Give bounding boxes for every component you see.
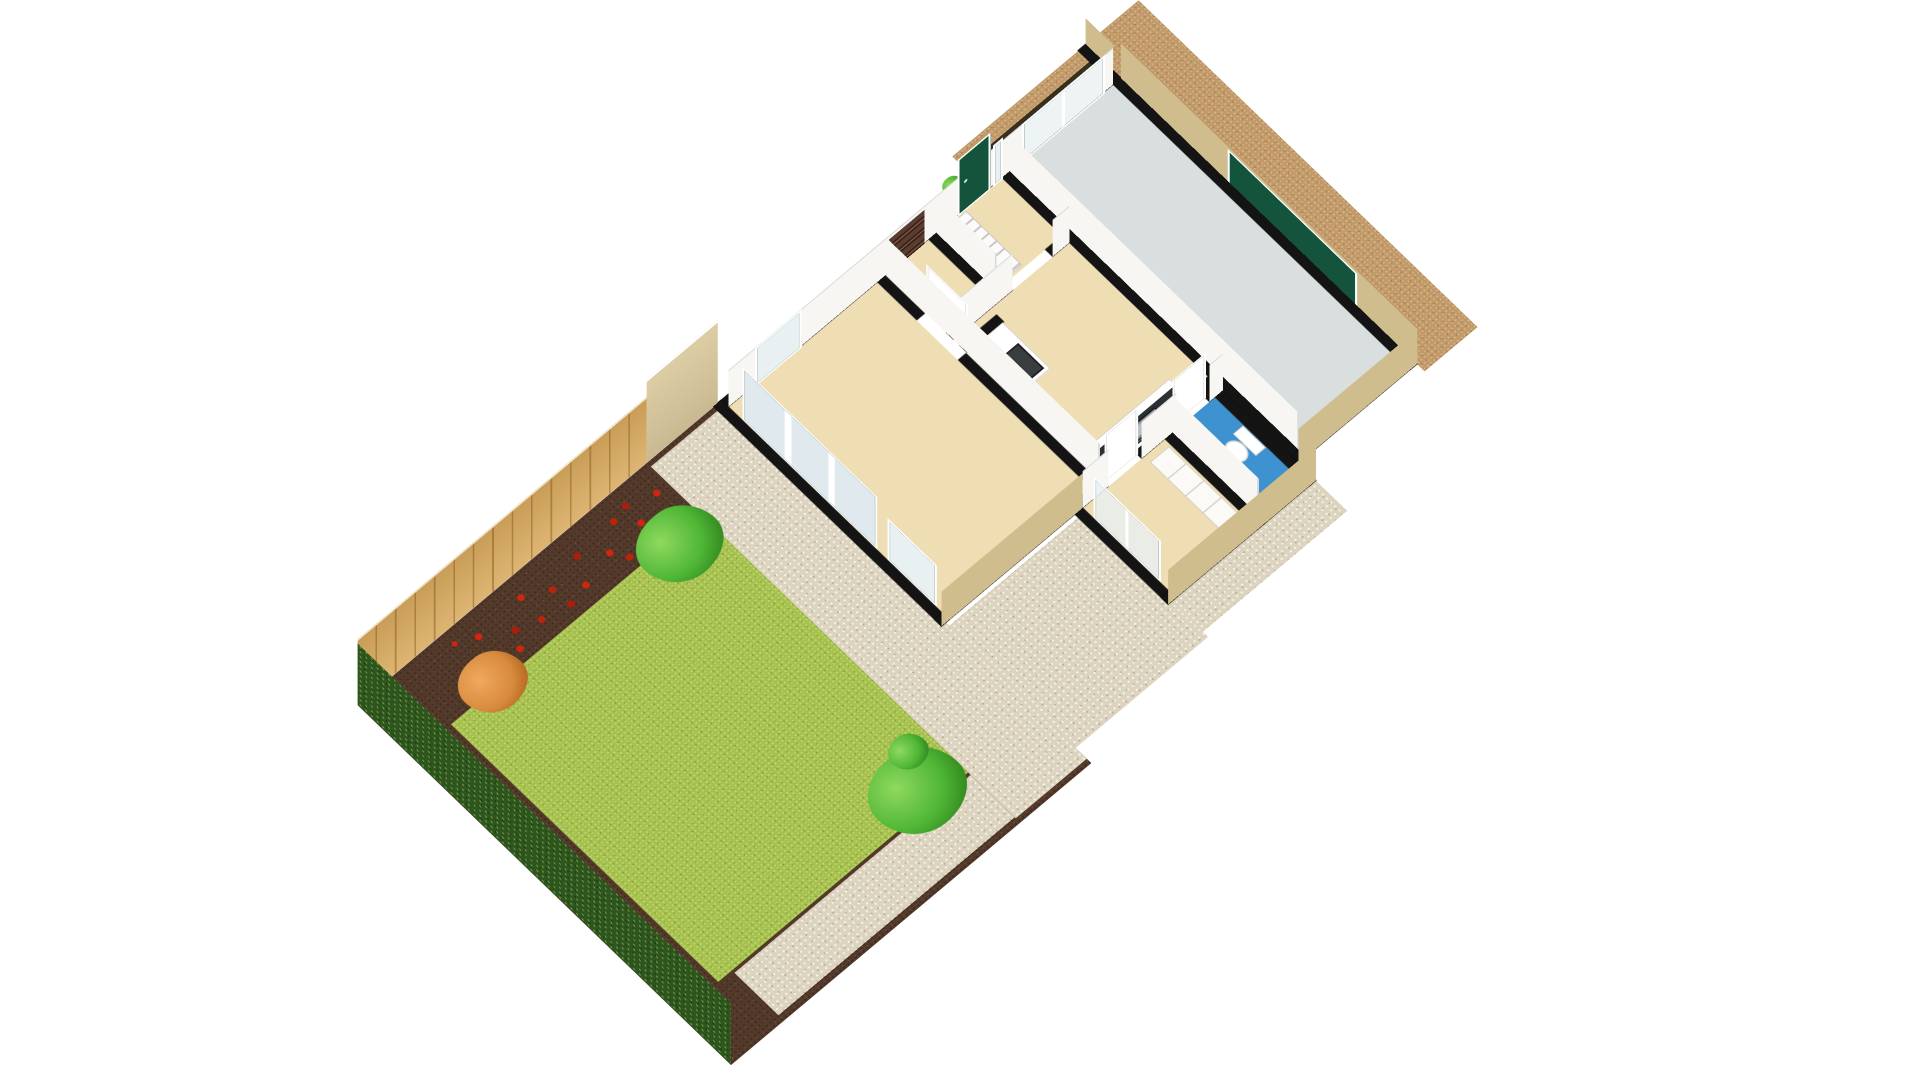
floorplan-render (0, 0, 1920, 1080)
ground-plane (358, 25, 1543, 1065)
hall-window (993, 137, 1003, 187)
front-door-handle (964, 178, 967, 183)
